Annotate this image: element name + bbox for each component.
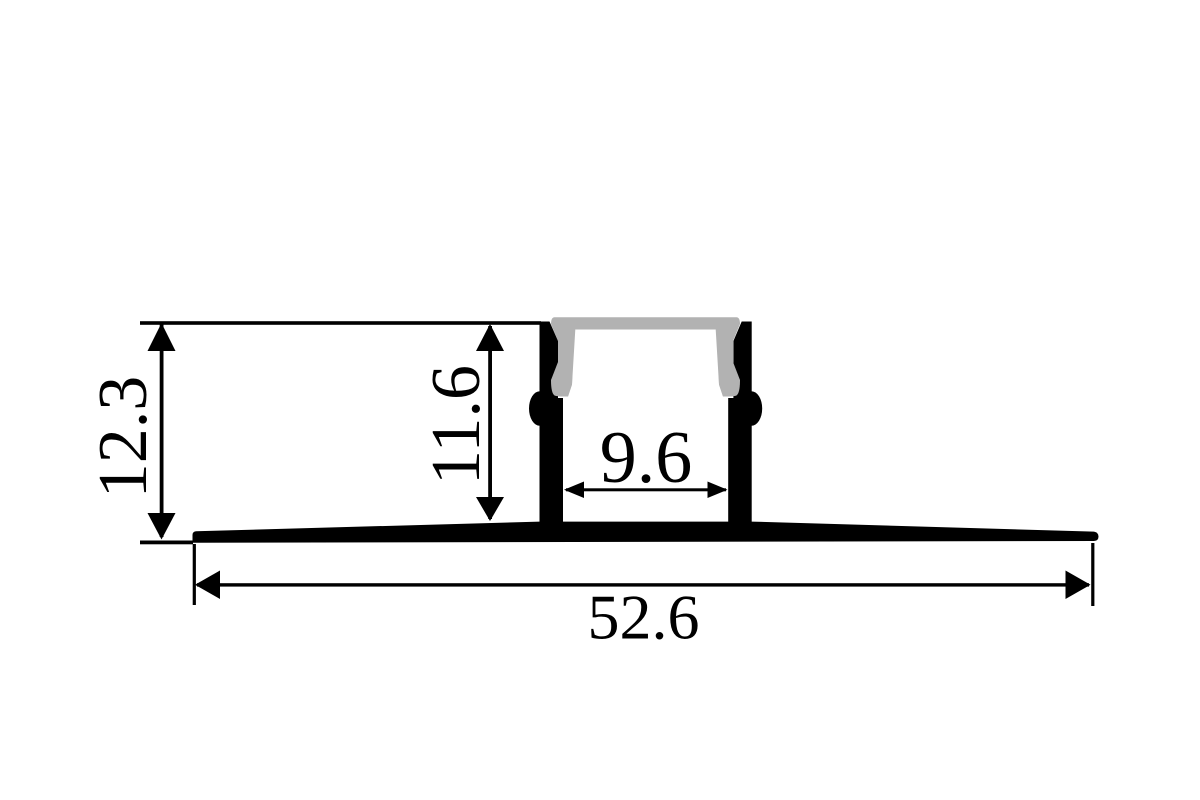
svg-text:9.6: 9.6 [600, 417, 693, 499]
svg-text:52.6: 52.6 [588, 582, 700, 653]
svg-text:12.3: 12.3 [85, 376, 162, 499]
svg-text:11.6: 11.6 [418, 365, 495, 485]
